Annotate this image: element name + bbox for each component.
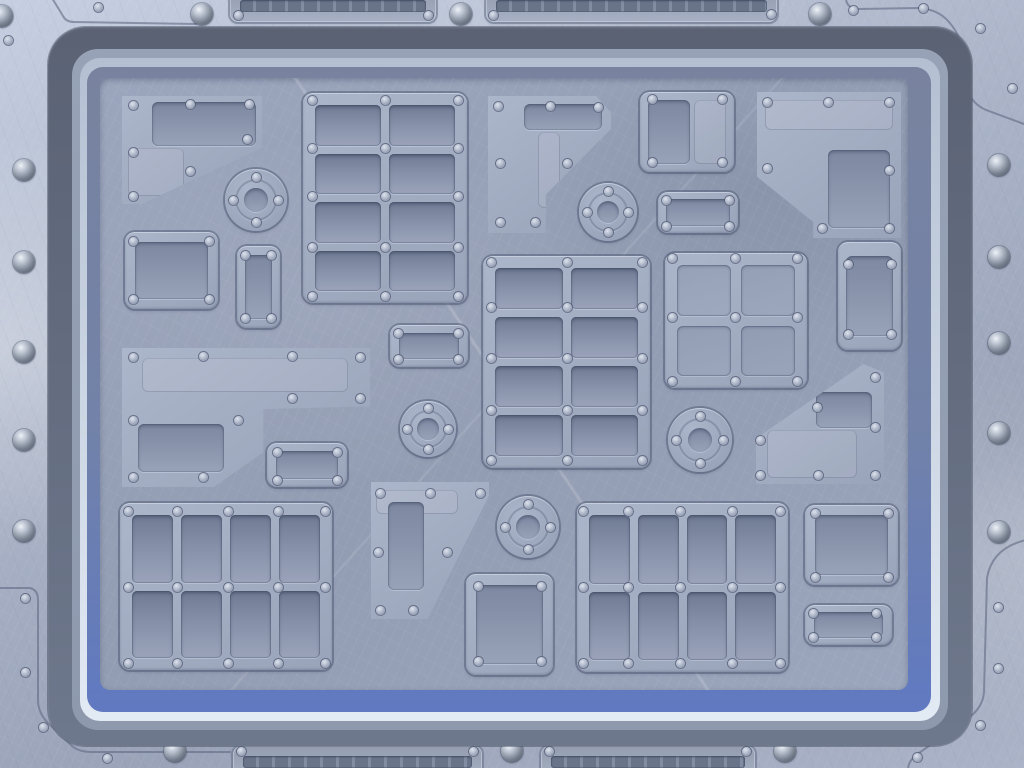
- frame-ring-blue: [87, 67, 931, 712]
- frame-ring-light: [80, 58, 940, 721]
- panel-scratch-texture: [100, 78, 908, 690]
- frame-ring-mid: [72, 49, 948, 730]
- frame-ring-dark: [48, 27, 972, 746]
- metal-panel-scene: [0, 0, 1024, 768]
- inner-hull-panel: [100, 78, 908, 690]
